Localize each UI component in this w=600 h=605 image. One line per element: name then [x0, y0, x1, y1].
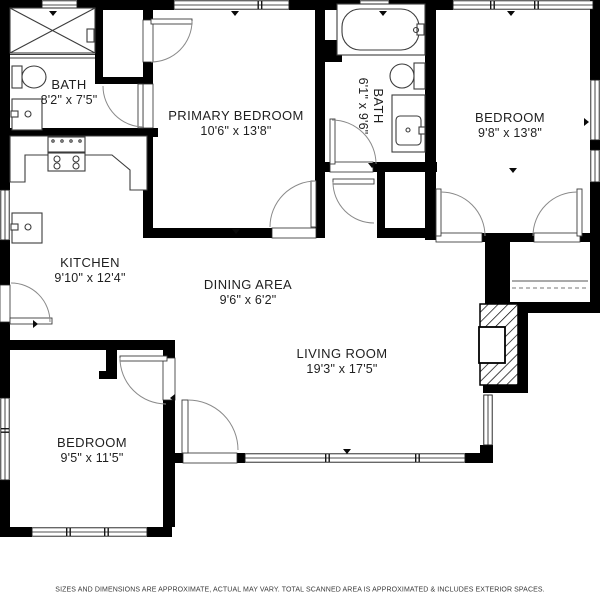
bedroom3-door — [120, 356, 167, 404]
disclaimer-text: SIZES AND DIMENSIONS ARE APPROXIMATE, AC… — [55, 587, 544, 594]
kitchen-fixtures — [10, 136, 147, 243]
bedroom2-closet — [512, 281, 588, 288]
stove — [48, 137, 85, 171]
sink-vanity — [11, 99, 42, 130]
window — [245, 454, 465, 462]
entry-door — [182, 400, 238, 453]
bath2-door — [330, 119, 376, 164]
bath1-fixtures — [10, 8, 95, 130]
bath2-fixtures — [337, 4, 425, 152]
window — [32, 528, 147, 536]
kitchen-side-door — [10, 283, 52, 324]
bedroom2-closet-door — [533, 189, 582, 236]
window — [591, 150, 599, 182]
floor-plan: BATH 8'2" x 7'5" PRIMARY BEDROOM 10'6" x… — [0, 0, 600, 605]
window — [453, 1, 593, 9]
bedroom2-door — [436, 189, 485, 236]
fireplace — [479, 304, 518, 385]
primary-closet-door — [151, 19, 192, 62]
window — [1, 398, 9, 480]
primary-bedroom-door — [270, 181, 316, 227]
window — [174, 1, 289, 9]
window — [1, 190, 9, 240]
window — [591, 80, 599, 140]
bath1-door — [103, 84, 144, 128]
hall-closet-door — [333, 179, 374, 223]
shower — [10, 8, 95, 58]
toilet — [12, 66, 46, 88]
kitchen-sink — [11, 213, 42, 243]
floor-plan-drawing — [0, 0, 600, 605]
window — [484, 395, 492, 445]
sink-vanity — [392, 95, 425, 152]
toilet — [390, 63, 425, 89]
